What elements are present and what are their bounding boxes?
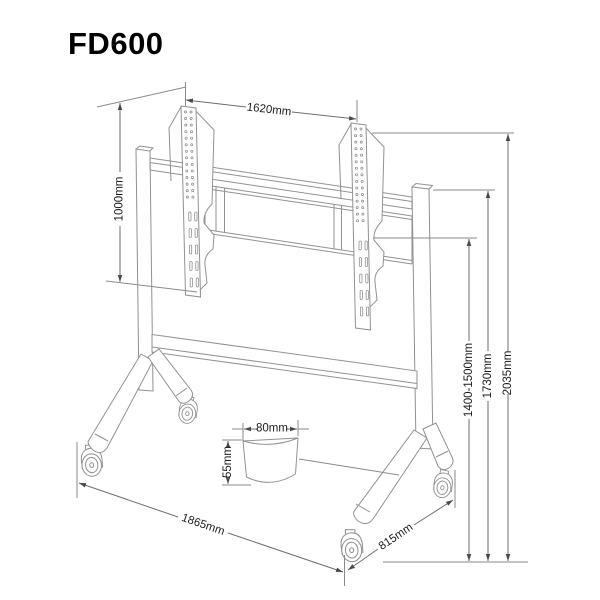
- rear-right-caster: [433, 469, 454, 499]
- dim-label-bracket-height: 1000mm: [114, 177, 126, 222]
- front-left-leg: [88, 354, 153, 453]
- dim-label-screen-height-range: 1400-1500mm: [463, 343, 475, 417]
- dimension-bracket-width: 1620mm: [186, 82, 358, 122]
- front-right-leg: [354, 430, 427, 524]
- dim-label-cup-height: 55mm: [222, 446, 234, 478]
- stand-diagram: FD600: [0, 0, 600, 600]
- cup-leader-line: [299, 459, 399, 475]
- dim-label-total-height: 2035mm: [502, 351, 514, 396]
- dimension-cup-height: 55mm: [222, 440, 251, 485]
- right-post: [412, 187, 433, 449]
- front-right-caster: [339, 528, 364, 563]
- dim-label-base-depth: 815mm: [377, 521, 416, 552]
- dim-label-base-length: 1865mm: [180, 512, 226, 538]
- dim-label-bracket-width: 1620mm: [246, 102, 292, 119]
- diagram-canvas: FD600: [0, 0, 600, 600]
- dimension-cup-diameter: 80mm: [232, 420, 309, 439]
- dim-label-cup-diameter: 80mm: [256, 423, 288, 435]
- dim-label-post-height: 1730mm: [482, 354, 494, 399]
- caster-cup-detail: [243, 438, 399, 482]
- lower-crossbar: [152, 335, 417, 389]
- right-tv-bracket: [339, 123, 384, 330]
- product-title: FD600: [68, 26, 164, 61]
- dimension-base-length: 1865mm: [77, 442, 345, 586]
- left-tv-bracket: [169, 106, 214, 297]
